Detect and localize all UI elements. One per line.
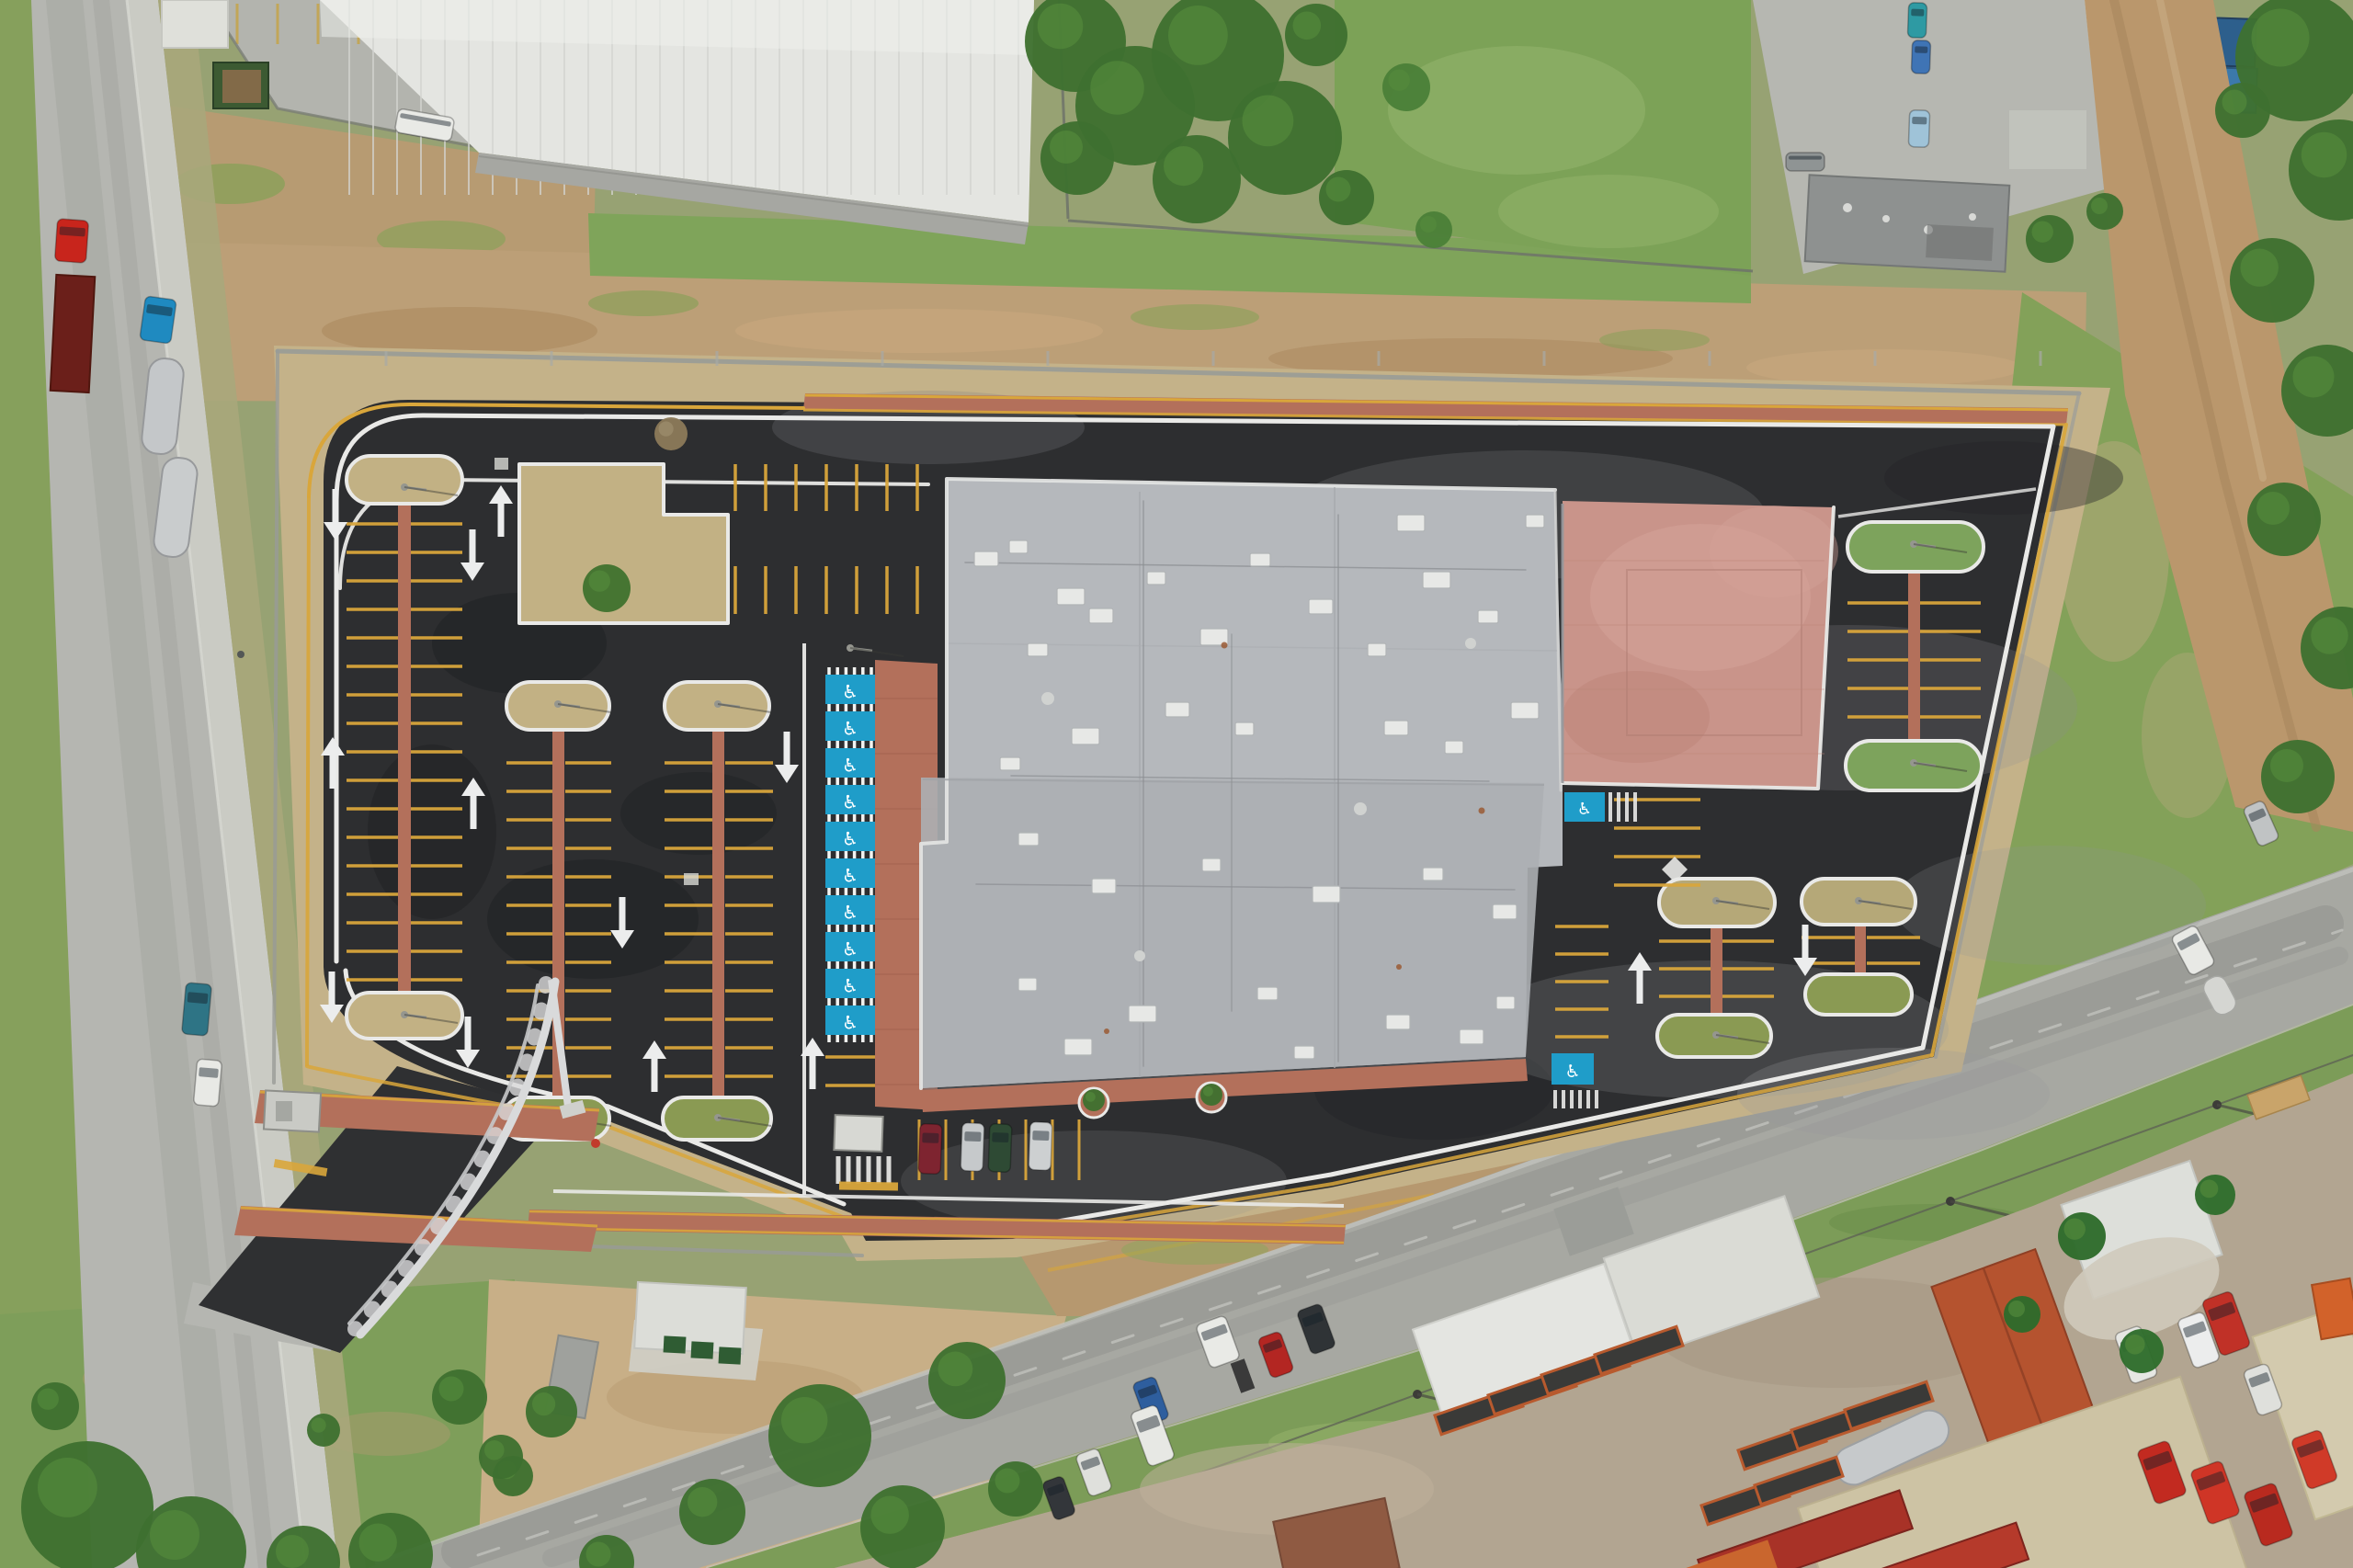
rooftop-hvac-units <box>1009 540 1028 553</box>
parked-car <box>182 983 212 1036</box>
hydrant <box>591 1139 600 1148</box>
parked-car <box>1911 40 1930 74</box>
median-walkway <box>398 467 411 1000</box>
rooftop-hvac-units <box>1313 886 1340 903</box>
rooftop-hvac-units <box>1493 904 1517 919</box>
median-walkway <box>1855 926 1866 978</box>
rooftop-hvac-units <box>1129 1006 1156 1022</box>
rooftop-hvac-units <box>1064 1039 1092 1055</box>
rooftop-hvac-units <box>1423 572 1450 588</box>
parked-car <box>961 1123 984 1172</box>
handicap-stall-column: ♿ <box>842 791 858 813</box>
rooftop-hvac-units <box>1250 553 1270 566</box>
pedestrian <box>237 651 244 658</box>
rooftop-hvac-units <box>1384 721 1408 735</box>
rooftop-hvac-units <box>1235 722 1254 735</box>
rooftop-hvac-units <box>1028 643 1048 656</box>
rooftop-hvac-units <box>1092 879 1116 893</box>
semi-truck-cab-blue <box>140 296 176 344</box>
median-walkway <box>1908 572 1920 744</box>
parked-car <box>1786 153 1824 171</box>
rooftop-hvac-units <box>1165 702 1189 717</box>
rooftop-hvac-units <box>1202 858 1221 871</box>
parked-car <box>918 1124 942 1175</box>
rooftop-hvac-units <box>1386 1015 1410 1029</box>
aerial-screenshot-root: ♿♿♿♿♿♿♿♿♿♿♿♿ <box>0 0 2353 1568</box>
median-walkway <box>1711 926 1722 1017</box>
rooftop-hvac-units <box>1309 599 1333 614</box>
rooftop-hvac-units <box>1018 978 1037 991</box>
rooftop-hvac-units <box>1147 572 1165 585</box>
svg-text:♿: ♿ <box>1564 1062 1580 1082</box>
rooftop-hvac-units <box>974 551 998 566</box>
handicap-stall-column: ♿ <box>842 681 858 703</box>
median-walkway <box>712 730 724 1099</box>
parking-island <box>1805 974 1912 1015</box>
rooftop-hvac-units <box>1018 833 1039 846</box>
parked-car <box>988 1124 1012 1173</box>
svg-text:♿: ♿ <box>1577 800 1592 819</box>
handicap-stall-column: ♿ <box>842 975 858 997</box>
parked-car <box>1908 110 1929 148</box>
rooftop-hvac-units <box>1496 996 1515 1009</box>
rooftop-hvac-units <box>1445 741 1463 754</box>
rooftop-hvac-units <box>1397 515 1425 531</box>
parked-car <box>1907 3 1927 39</box>
handicap-stall-column: ♿ <box>842 938 858 960</box>
semi-truck-cab-red <box>54 219 88 263</box>
container-trailer <box>51 275 96 392</box>
rooftop-hvac-units <box>1368 643 1386 656</box>
handicap-stall-column: ♿ <box>842 755 858 777</box>
aerial-photo-supermarket-parking-lot: ♿♿♿♿♿♿♿♿♿♿♿♿ <box>0 0 2353 1568</box>
rooftop-hvac-units <box>1460 1029 1483 1044</box>
rooftop-hvac-units <box>1057 588 1085 605</box>
rooftop-hvac-units <box>1423 868 1443 881</box>
handicap-stall-column: ♿ <box>842 718 858 740</box>
rooftop-hvac-units <box>1294 1046 1314 1059</box>
speed-bump <box>839 1181 898 1190</box>
rooftop-hvac-units <box>1526 515 1544 528</box>
shed <box>634 1282 746 1354</box>
rooftop-hvac-units <box>1511 702 1539 719</box>
handicap-stall-column: ♿ <box>842 865 858 887</box>
parking-island <box>347 456 462 504</box>
handicap-stall-column: ♿ <box>842 902 858 924</box>
handicap-stall-column: ♿ <box>842 828 858 850</box>
rooftop-hvac-units <box>1089 608 1113 623</box>
parked-car <box>193 1059 222 1107</box>
rooftop-hvac-units <box>1000 757 1020 770</box>
utility-kiosk <box>834 1115 882 1152</box>
handicap-stall-column: ♿ <box>842 1012 858 1034</box>
rooftop-hvac-units <box>1478 610 1498 623</box>
rooftop-hvac-units <box>1072 728 1099 744</box>
parked-car <box>1029 1122 1052 1171</box>
rooftop-hvac-units <box>1257 987 1278 1000</box>
